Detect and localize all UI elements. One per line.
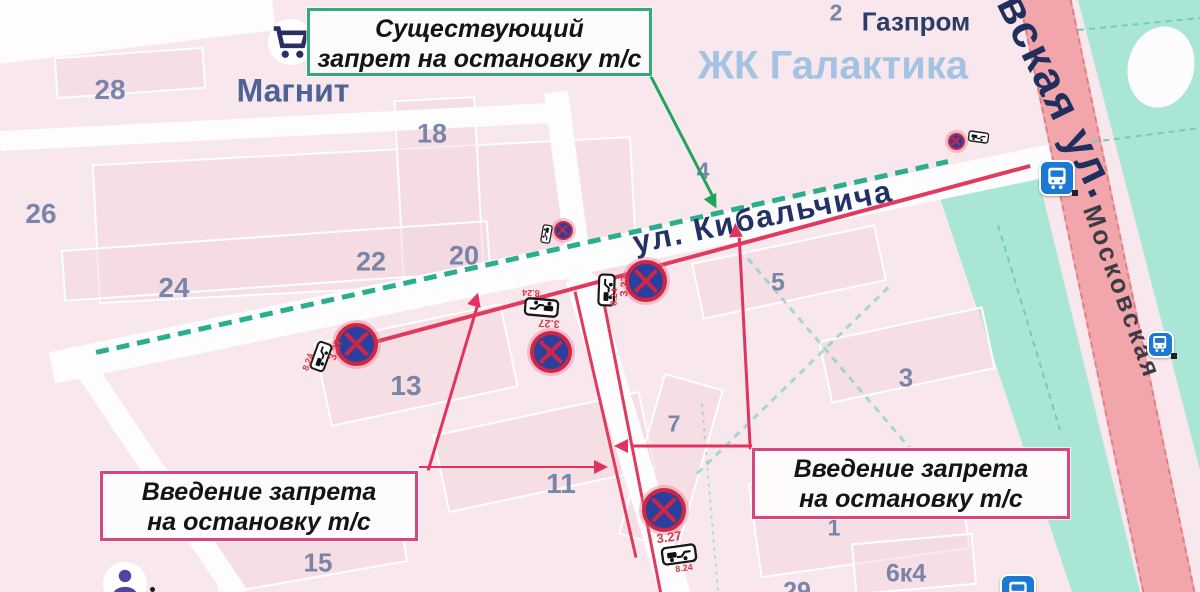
poi-label-zhk-galaktika: ЖК Галактика	[698, 44, 968, 89]
bus-stop-anchor-dot	[1171, 353, 1177, 359]
leader-arrow-existing	[648, 71, 714, 196]
sign-code-8-24: 8.24	[522, 288, 540, 299]
no-stopping-sign	[948, 133, 965, 150]
sign-code-3-27: 3.27	[538, 316, 560, 329]
annotation-existing-ban-line1: Существующий	[310, 14, 649, 44]
tow-truck-plate-icon	[538, 224, 553, 245]
annotation-new-ban-left: Введение запрета на остановку т/с	[100, 471, 418, 541]
building-number: 6к4	[886, 560, 926, 589]
no-stopping-sign	[642, 488, 686, 532]
building-number: 22	[356, 247, 386, 278]
sign-code-8-24: 8.24	[609, 288, 620, 306]
building-number: 20	[449, 241, 479, 272]
building-number: 15	[304, 548, 333, 579]
tow-truck-plate-icon	[660, 542, 698, 566]
building-block	[54, 47, 207, 99]
no-stopping-sign	[530, 331, 572, 373]
bus-stop-icon	[1000, 574, 1036, 592]
person-icon-dot	[150, 587, 155, 592]
leader-arrow-right-horizontal	[631, 445, 752, 448]
annotation-existing-ban: Существующий запрет на остановку т/с	[307, 8, 652, 76]
annotation-new-ban-right-line2: на остановку т/с	[755, 484, 1067, 514]
leader-arrow-left-diagonal-arrowhead	[467, 291, 484, 308]
tow-truck-plate-icon	[967, 130, 989, 145]
bus-stop-icon	[1147, 331, 1174, 358]
building-number: 7	[668, 411, 681, 438]
building-number: 5	[771, 269, 785, 298]
building-number: 11	[546, 468, 576, 500]
building-number: 2	[830, 0, 843, 27]
bus-stop-anchor-dot	[1072, 190, 1078, 196]
person-icon	[103, 562, 147, 592]
no-stopping-sign	[625, 260, 667, 302]
annotation-new-ban-right-line1: Введение запрета	[755, 454, 1067, 484]
bus-stop-icon	[1039, 160, 1075, 196]
poi-label-gazprom: Газпром	[862, 7, 970, 38]
building-number: 3	[899, 363, 913, 394]
building-number: 18	[417, 119, 447, 150]
annotation-new-ban-left-line2: на остановку т/с	[103, 507, 415, 537]
building-number: 28	[94, 74, 125, 106]
tow-truck-plate-icon	[523, 296, 560, 318]
poi-label-magnit: Магнит	[237, 73, 350, 110]
annotation-existing-ban-line2: запрет на остановку т/с	[310, 44, 649, 74]
building-number: 26	[25, 198, 56, 230]
annotation-new-ban-left-line1: Введение запрета	[103, 477, 415, 507]
leader-arrow-right-vertical-arrowhead	[728, 223, 743, 238]
leader-arrow-left-horizontal-arrowhead	[594, 460, 608, 474]
building-number: 29	[783, 578, 811, 592]
no-stopping-sign	[554, 221, 573, 240]
sign-code-8-24: 8.24	[675, 562, 694, 574]
map-canvas: ул. КибальчичаМосковскаявская ул.МагнитГ…	[0, 0, 1200, 592]
building-number: 13	[390, 370, 421, 402]
building-number: 24	[158, 272, 189, 304]
annotation-new-ban-right: Введение запрета на остановку т/с	[752, 448, 1070, 519]
sign-code-3-27: 3.27	[618, 275, 631, 297]
leader-arrow-left-horizontal	[419, 466, 597, 469]
leader-arrow-right-horizontal-arrowhead	[614, 439, 628, 453]
